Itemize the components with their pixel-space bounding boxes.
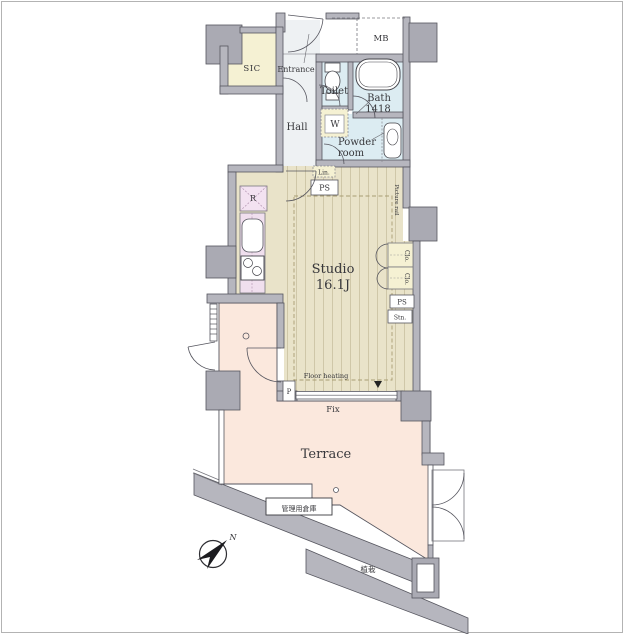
floor-plan-canvas: MB SIC Entrance Toilet Bath 1418 Hall W … (0, 0, 624, 634)
sic-label: SIC (243, 64, 260, 74)
floor-plan: MB SIC Entrance Toilet Bath 1418 Hall W … (0, 0, 624, 634)
pipe-label: P (287, 388, 292, 396)
mb-label: MB (374, 34, 389, 44)
ps-right-label: PS (397, 299, 407, 307)
pillar-top-right (409, 23, 437, 62)
closet-upper-label: Clo. (403, 250, 410, 262)
fix-label: Fix (326, 405, 340, 415)
pillar-bottom-left (206, 371, 240, 410)
fix-window (296, 392, 397, 400)
picture-rail-label: Picture rail (393, 184, 399, 216)
hall-label: Hall (286, 122, 307, 133)
closet-lower-label: Clo. (403, 273, 410, 285)
wall-terrace-right-stub (428, 545, 433, 559)
wall-toilet-bath-divider (348, 62, 353, 110)
louver-fence (210, 304, 217, 341)
north-label: N (229, 533, 238, 542)
linen-label: Lin. (318, 170, 330, 177)
wall-terrace-right-upper (422, 421, 430, 455)
station-label: Stn. (394, 315, 406, 322)
wall-kitchen-bottom (207, 294, 283, 303)
fridge-label: R (250, 194, 257, 203)
opening-bottom-right (417, 564, 434, 592)
wall-right-lower (413, 241, 420, 392)
wall-studio-top-left (228, 165, 283, 172)
wall-hall-left (276, 27, 283, 172)
kitchen-sink (242, 219, 263, 252)
pillar-right-mid (409, 207, 437, 241)
pillar-studio-se (401, 391, 431, 421)
powder-room-label-2: room (338, 148, 365, 159)
washer-label: W (330, 120, 340, 130)
toilet-label: Toilet (320, 86, 348, 97)
bath-label: Bath (367, 93, 391, 104)
hall-floor (283, 20, 320, 166)
studio-label: Studio (312, 262, 355, 277)
stove (241, 256, 264, 280)
wall-studio-top-right (316, 160, 410, 167)
planting-label: 植栽 (361, 564, 376, 574)
storage-label: 管理用倉庫 (282, 504, 317, 513)
powder-room-label-1: Powder (338, 137, 376, 148)
ps-top-label: PS (319, 184, 330, 193)
wall-terrace-left (219, 410, 224, 484)
bathtub (356, 59, 400, 90)
bath-size-label: 1418 (365, 104, 390, 115)
terrace-drain-icon (334, 488, 339, 493)
pillar-mid-left (206, 246, 236, 278)
floor-heating-label: Floor heating (304, 372, 349, 380)
terrace-label: Terrace (301, 447, 352, 462)
wall-terrace-right-foot (422, 453, 444, 465)
studio-size-label: 16.1J (316, 278, 350, 293)
wall-studio-left-upper (277, 303, 284, 348)
entrance-label: Entrance (277, 65, 314, 74)
wall-sic-bottom (220, 86, 283, 94)
wall-right-mid (403, 167, 410, 208)
